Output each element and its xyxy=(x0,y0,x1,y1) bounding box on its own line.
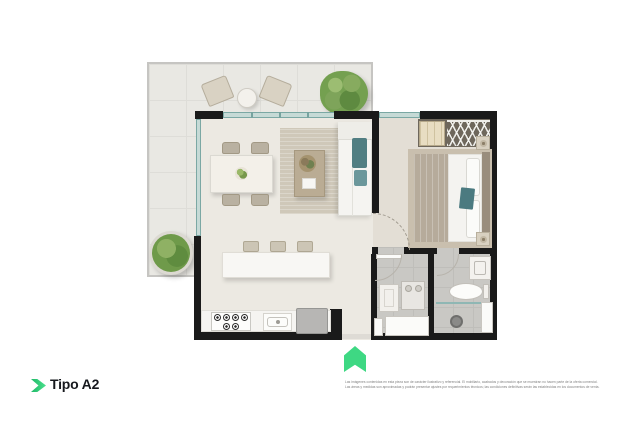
stove-burner-icon xyxy=(241,314,248,321)
kitchen-end-column xyxy=(330,309,342,333)
wall-bedroom-bottom-c xyxy=(459,247,497,254)
laundry-counter xyxy=(385,316,429,336)
bathroom-vanity xyxy=(469,256,491,280)
sofa-teal-cushion xyxy=(354,170,367,186)
wall-living-bedroom xyxy=(372,111,379,213)
bed-headboard xyxy=(482,152,490,244)
stove-burner-icon xyxy=(232,323,239,330)
entrance-arrow-icon xyxy=(344,346,366,372)
plan-type-label: Tipo A2 xyxy=(50,376,99,392)
nightstand xyxy=(476,136,490,150)
sink-faucet-icon xyxy=(276,320,280,324)
washing-machine xyxy=(401,281,425,310)
bed-teal-tray xyxy=(459,187,475,209)
dining-chair xyxy=(222,142,240,154)
closet-shelf xyxy=(419,121,445,146)
stove-burner-icon xyxy=(223,314,230,321)
dining-chair xyxy=(251,194,269,206)
dining-chair xyxy=(222,194,240,206)
bar-stool xyxy=(297,241,313,252)
terrace-tree-icon xyxy=(320,71,368,115)
bed-blanket xyxy=(414,154,448,242)
nightstand xyxy=(476,232,490,246)
bar-stool xyxy=(243,241,259,252)
laundry-cabinet xyxy=(379,284,399,312)
vanity-basin xyxy=(474,261,486,275)
wall-top-right xyxy=(420,111,497,119)
legal-disclaimer: Las imágenes contenidas en esta pieza so… xyxy=(345,380,633,390)
coffee-table-flowers-icon xyxy=(299,155,316,172)
washer-knob-icon xyxy=(405,285,412,292)
laundry-niche xyxy=(374,318,383,336)
disclaimer-line-2: Las áreas y medidas son aproximadas y po… xyxy=(345,385,633,390)
wall-top-left xyxy=(195,111,223,119)
coffee-table-book xyxy=(302,178,316,189)
stove-burner-icon xyxy=(223,323,230,330)
entrance-threshold xyxy=(342,334,371,339)
bar-stool xyxy=(270,241,286,252)
window-mullion xyxy=(251,112,253,118)
terrace-side-table xyxy=(237,88,257,108)
sofa-teal-cushion xyxy=(352,138,367,168)
wall-left xyxy=(194,236,201,340)
window-mullion xyxy=(279,112,281,118)
shower-drain-icon xyxy=(450,315,463,328)
shower-glass xyxy=(436,302,482,304)
lamp-icon xyxy=(480,236,487,243)
refrigerator xyxy=(296,308,328,334)
lamp-icon xyxy=(480,140,487,147)
stove-burner-icon xyxy=(214,314,221,321)
toilet xyxy=(449,283,483,300)
plant-leaves xyxy=(152,234,190,272)
window-bedroom xyxy=(379,112,420,118)
floorplan-page: Tipo A2 Las imágenes contenidas en esta … xyxy=(0,0,640,427)
kitchen-sink xyxy=(263,313,292,331)
window-living-left xyxy=(196,119,201,236)
brand-chevron-icon xyxy=(31,379,46,392)
shower-bench xyxy=(481,302,493,333)
washer-knob-icon xyxy=(415,285,422,292)
kitchen-island xyxy=(222,252,330,278)
terrace-plant-icon xyxy=(149,231,193,275)
table-centerpiece-icon xyxy=(235,167,248,180)
stove xyxy=(211,312,251,331)
toilet-tank xyxy=(483,284,489,299)
stove-burner-icon xyxy=(232,314,239,321)
dining-chair xyxy=(251,142,269,154)
window-mullion xyxy=(307,112,309,118)
cabinet-detail xyxy=(384,289,394,307)
